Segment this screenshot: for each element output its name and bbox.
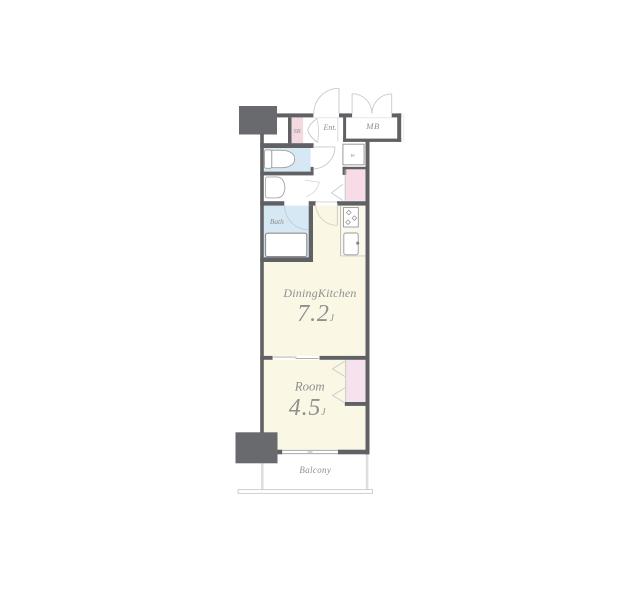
svg-text:Ent.: Ent. — [322, 123, 336, 132]
svg-text:Bath: Bath — [270, 217, 284, 226]
svg-text:MB: MB — [365, 121, 380, 131]
svg-text:DiningKitchen: DiningKitchen — [282, 286, 356, 300]
svg-text:7.2J: 7.2J — [297, 301, 334, 327]
svg-text:Room: Room — [294, 380, 325, 394]
svg-text:SB: SB — [293, 128, 300, 135]
svg-text:4.5J: 4.5J — [289, 395, 326, 421]
svg-text:Balcony: Balcony — [299, 465, 331, 475]
